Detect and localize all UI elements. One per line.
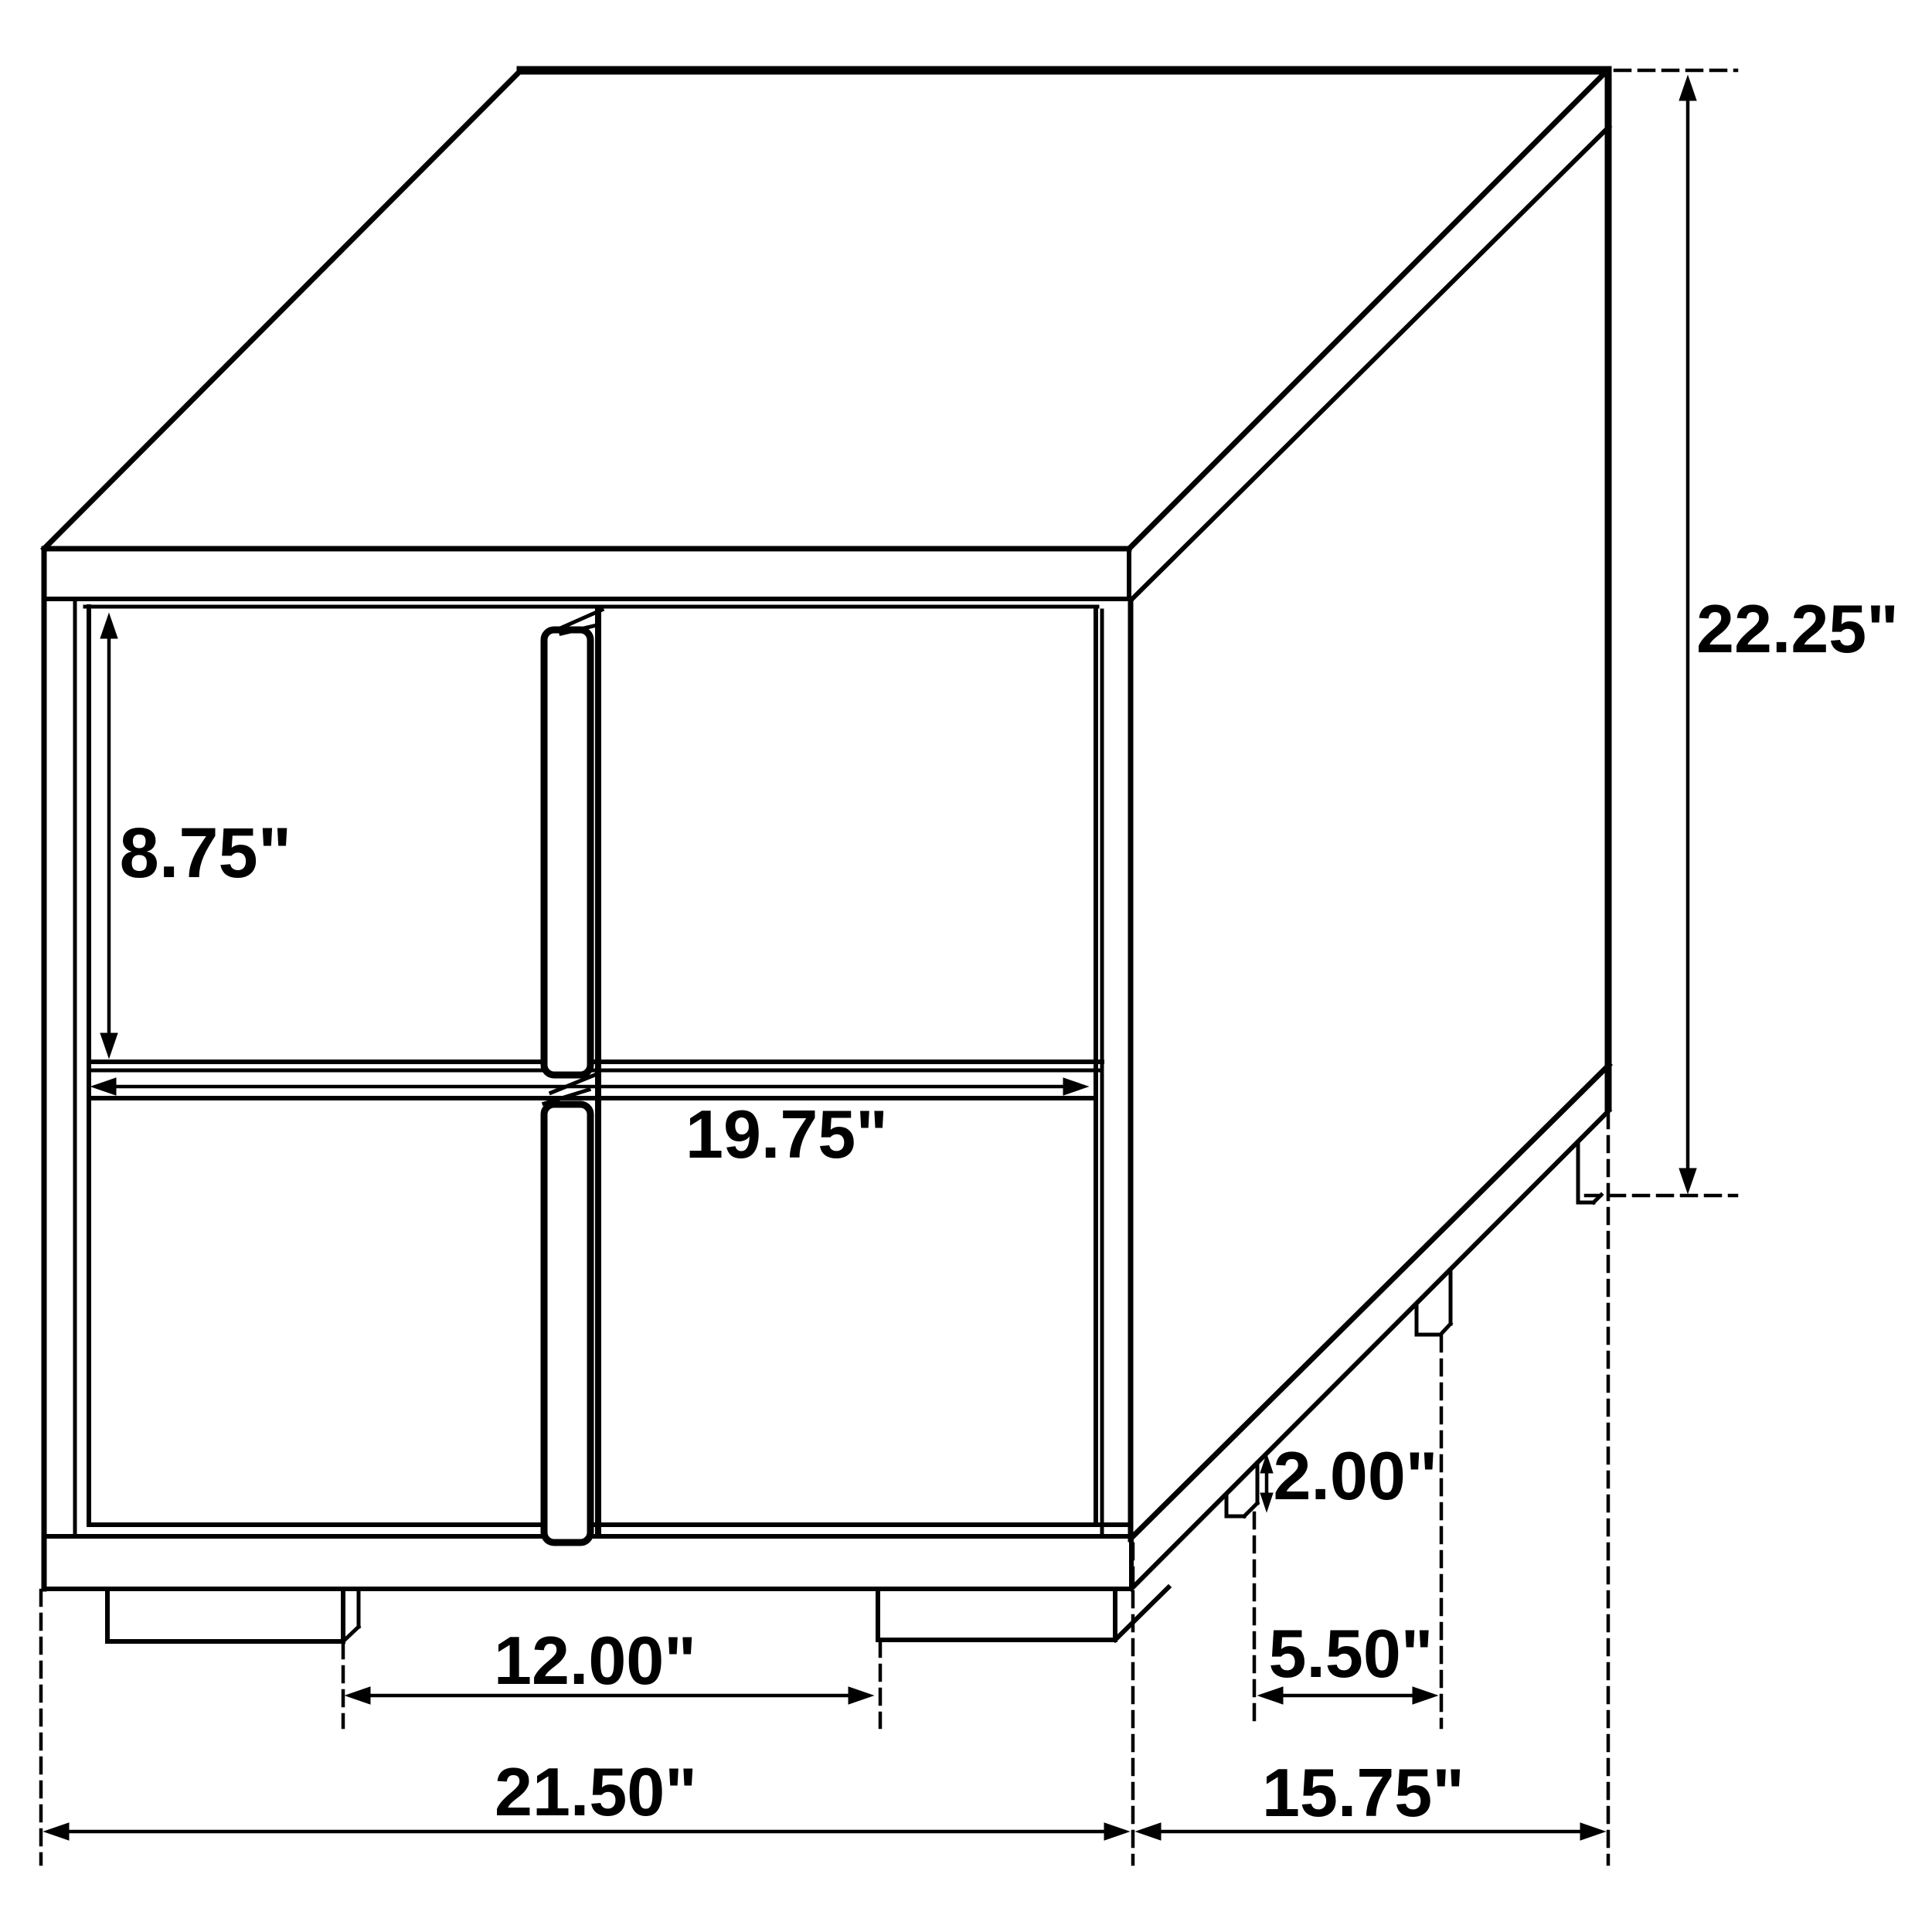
- svg-text:12.00": 12.00": [494, 1622, 696, 1699]
- svg-text:22.25": 22.25": [1696, 590, 1899, 667]
- svg-text:21.50": 21.50": [495, 1753, 697, 1830]
- svg-text:15.75": 15.75": [1262, 1754, 1464, 1831]
- svg-text:2.00": 2.00": [1274, 1437, 1438, 1514]
- svg-text:19.75": 19.75": [685, 1096, 888, 1172]
- svg-text:8.75": 8.75": [120, 814, 292, 893]
- svg-text:5.50": 5.50": [1269, 1615, 1434, 1692]
